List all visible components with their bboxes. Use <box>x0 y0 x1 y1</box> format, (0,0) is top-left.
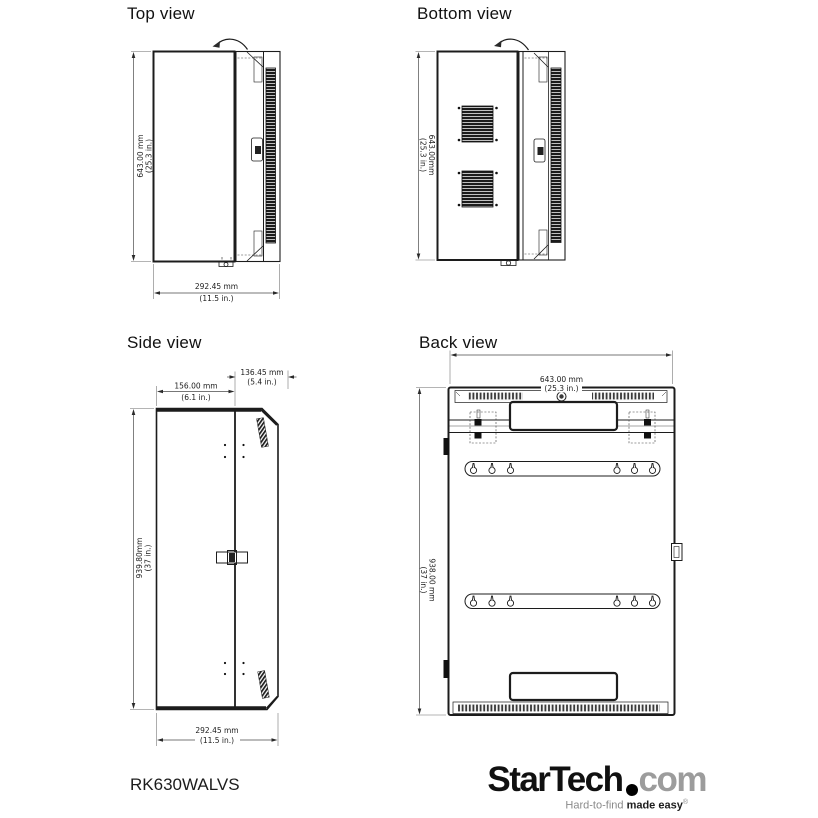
bottom-view-door-vent-grille <box>551 68 561 243</box>
side-view-front-depth-dimension: 156.00 mm (6.1 in.) <box>157 372 236 407</box>
top-view-door-latch <box>252 138 263 161</box>
side-view-bottom-depth-dimension: 292.45 mm (11.5 in.) <box>157 713 279 746</box>
top-view-bottom-hinge-tab <box>219 257 233 267</box>
top-view-cabinet-body <box>154 52 235 262</box>
back-view-bottom-vent-band <box>453 702 668 714</box>
logo-dot-icon <box>626 784 638 796</box>
bottom-height-in: (25.3 in.) <box>419 138 428 172</box>
back-view-height-dimension: 938.00 mm (37 in.) <box>416 388 446 716</box>
bottom-view-door-swing-arrow <box>494 39 529 50</box>
side-front-in: (6.1 in.) <box>181 393 210 402</box>
top-depth-mm: 292.45 mm <box>195 282 238 291</box>
bottom-view-fan-vent-1 <box>458 106 498 142</box>
top-view-depth-dimension: 292.45 mm (11.5 in.) <box>154 264 280 303</box>
top-view-height-dimension: 643.00 mm (25.3 in.) <box>131 52 154 262</box>
top-depth-in: (11.5 in.) <box>199 294 233 303</box>
side-depth-mm: 292.45 mm <box>195 726 238 735</box>
back-view-drawing: 643.00 mm (25.3 in.) 938.00 mm (37 in.) <box>416 351 682 716</box>
side-height-in: (37 in.) <box>144 544 153 571</box>
bottom-view-drawing: 643.00mm (25.3 in.) <box>416 39 566 265</box>
tagline-bold: made easy <box>627 800 683 812</box>
back-view-keyhole-bar-top <box>465 462 660 477</box>
top-view-door-vent-grille <box>266 68 276 243</box>
logo-suffix-text: com <box>639 762 706 797</box>
bottom-view-fan-vent-2 <box>458 171 498 207</box>
side-view-drawing: 939.80mm (37 in.) 156.00 mm (6.1 in.) 13… <box>130 368 297 746</box>
back-view-keyhole-bar-bottom <box>465 594 660 609</box>
logo-tagline: Hard-to-find made easy® <box>565 799 706 812</box>
bottom-view-height-dimension: 643.00mm (25.3 in.) <box>416 52 437 261</box>
product-model-number: RK630WALVS <box>130 775 240 795</box>
side-depth-in: (11.5 in.) <box>200 736 234 745</box>
logo-brand-text: StarTech <box>487 762 622 797</box>
back-view-side-latch <box>672 544 683 561</box>
bottom-view-door-latch <box>534 139 545 162</box>
back-view-bottom-cable-cutout <box>510 673 617 700</box>
drawing-sheet: { "product": { "model": "RK630WALVS" }, … <box>0 0 818 818</box>
back-width-in: (25.3 in.) <box>544 384 578 393</box>
back-view-grommet <box>557 392 566 401</box>
back-width-mm: 643.00 mm <box>540 375 583 384</box>
startech-wordmark: StarTech com <box>487 762 706 797</box>
back-view-top-cable-cutout <box>510 402 617 430</box>
top-height-in: (25.3 in.) <box>145 139 154 173</box>
side-rear-in: (5.4 in.) <box>247 378 276 387</box>
registered-trademark-symbol: ® <box>683 799 688 806</box>
side-rear-mm: 136.45 mm <box>240 368 283 377</box>
back-view-body <box>449 388 675 716</box>
startech-logo: StarTech com Hard-to-find made easy® <box>487 762 706 812</box>
back-height-in: (37 in.) <box>419 566 428 593</box>
back-view-hinge-top <box>444 438 450 455</box>
side-view-height-dimension: 939.80mm (37 in.) <box>130 409 154 710</box>
top-view-door-swing-arrow <box>213 39 248 49</box>
side-front-mm: 156.00 mm <box>174 382 217 391</box>
back-view-hinge-bottom <box>444 660 450 678</box>
side-view-rear-depth-dimension: 136.45 mm (5.4 in.) <box>227 368 297 389</box>
side-view-bottom-vent-slot <box>258 671 270 699</box>
technical-drawing-canvas: 643.00 mm (25.3 in.) 292.45 mm (11.5 in.… <box>0 0 818 818</box>
tagline-regular: Hard-to-find <box>565 800 626 812</box>
top-view-drawing: 643.00 mm (25.3 in.) 292.45 mm (11.5 in.… <box>131 39 280 303</box>
side-view-latch <box>217 551 248 565</box>
side-view-top-vent-slot <box>257 418 269 448</box>
bottom-view-cabinet-body <box>438 52 518 261</box>
